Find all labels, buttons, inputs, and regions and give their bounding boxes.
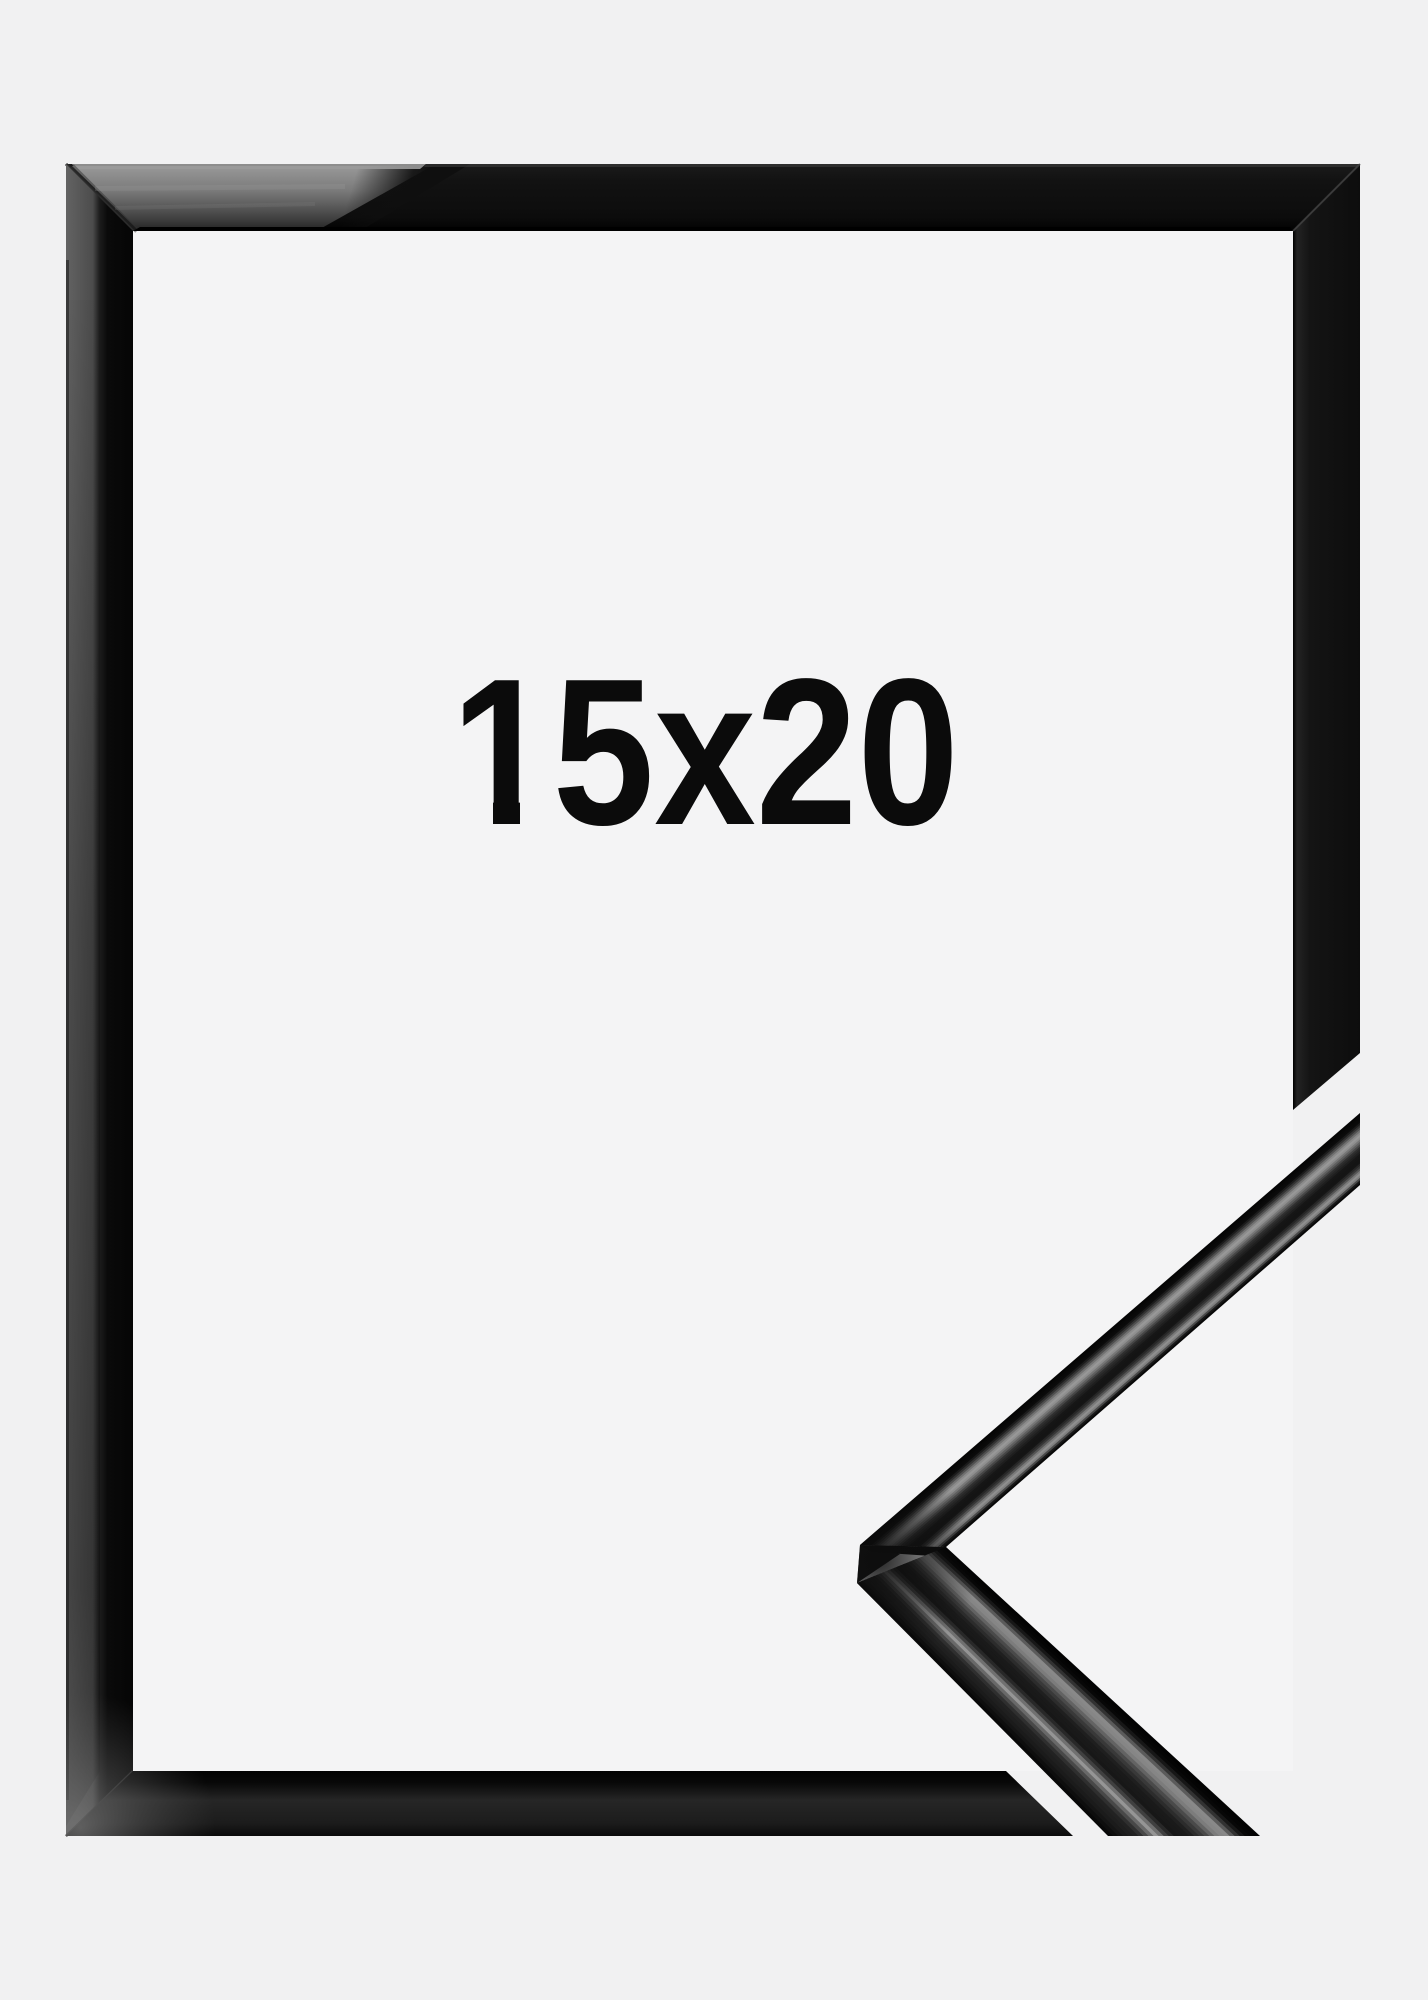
svg-text:15x20: 15x20 [451,636,959,869]
